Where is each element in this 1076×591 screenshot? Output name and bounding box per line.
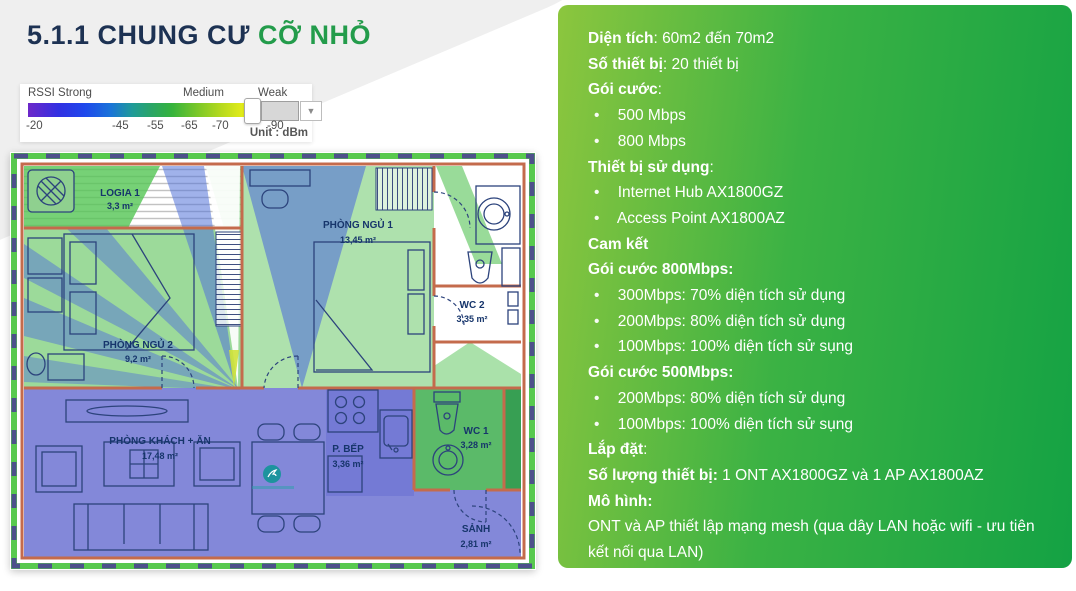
closet-strip-bedroom1 bbox=[376, 168, 432, 210]
floorplan-image: LOGIA 1 3,3 m² PHÒNG NGỦ 2 9,2 m² PHÒNG … bbox=[10, 152, 536, 570]
info-panel-line: Cam kết bbox=[588, 232, 1054, 258]
info-panel-line: Mô hình: bbox=[588, 489, 1054, 515]
rssi-legend: RSSI Strong Medium Weak ▼ -20 -45 -55 -6… bbox=[20, 84, 312, 142]
info-panel-line: Gói cước 500Mbps: bbox=[588, 360, 1054, 386]
rssi-gradient-bar bbox=[28, 103, 246, 117]
legend-tick: -70 bbox=[212, 120, 229, 132]
info-panel-line: Gói cước 800Mbps: bbox=[588, 257, 1054, 283]
room-area-wc2: 3,35 m² bbox=[456, 314, 487, 324]
info-panel-line: 200Mbps: 80% diện tích sử dụng bbox=[588, 386, 1054, 412]
info-panel-line: Gói cước: bbox=[588, 77, 1054, 103]
room-label-wc1: WC 1 bbox=[464, 426, 489, 437]
room-label-bedroom1: PHÒNG NGỦ 1 bbox=[323, 218, 393, 231]
info-panel-line: 100Mbps: 100% diện tích sử sụng bbox=[588, 412, 1054, 438]
info-panel-line: 500 Mbps bbox=[588, 103, 1054, 129]
rssi-slider-handle[interactable] bbox=[244, 98, 261, 124]
heatmap-blue-kitchen bbox=[326, 388, 414, 496]
room-label-hall: SẢNH bbox=[462, 522, 490, 535]
legend-tick: -45 bbox=[112, 120, 129, 132]
info-panel-line: Số thiết bị: 20 thiết bị bbox=[588, 52, 1054, 78]
legend-tick: -65 bbox=[181, 120, 198, 132]
room-label-logia1: LOGIA 1 bbox=[100, 188, 140, 199]
rssi-dropdown-caret-icon[interactable]: ▼ bbox=[300, 101, 322, 121]
closet-strip-left bbox=[216, 232, 242, 326]
info-panel: Diện tích: 60m2 đến 70m2 Số thiết bị: 20… bbox=[558, 5, 1072, 568]
info-panel-line: 200Mbps: 80% diện tích sử dụng bbox=[588, 309, 1054, 335]
info-panel-line: 300Mbps: 70% diện tích sử dụng bbox=[588, 283, 1054, 309]
room-area-living: 17,48 m² bbox=[142, 451, 178, 461]
room-area-logia1: 3,3 m² bbox=[107, 201, 133, 211]
legend-label-medium: Medium bbox=[183, 87, 224, 99]
room-area-bedroom2: 9,2 m² bbox=[125, 354, 151, 364]
room-label-living: PHÒNG KHÁCH + ĂN bbox=[109, 434, 210, 447]
info-panel-line: Số lượng thiết bị: 1 ONT AX1800GZ và 1 A… bbox=[588, 463, 1054, 489]
info-panel-line: 800 Mbps bbox=[588, 129, 1054, 155]
legend-tick: -20 bbox=[26, 120, 43, 132]
info-panel-line: 100Mbps: 100% diện tích sử sụng bbox=[588, 334, 1054, 360]
room-area-wc1: 3,28 m² bbox=[460, 440, 491, 450]
rssi-weak-box bbox=[261, 101, 299, 121]
info-panel-line: Lắp đặt: bbox=[588, 437, 1054, 463]
info-panel-line: ONT và AP thiết lập mạng mesh (qua dây L… bbox=[588, 514, 1054, 565]
info-panel-line: Access Point AX1800AZ bbox=[588, 206, 1054, 232]
legend-tick: -55 bbox=[147, 120, 164, 132]
room-label-kitchen: P. BẾP bbox=[332, 442, 364, 455]
room-area-bedroom1: 13,45 m² bbox=[340, 235, 376, 245]
info-panel-line: Diện tích: 60m2 đến 70m2 bbox=[588, 26, 1054, 52]
legend-label-weak: Weak bbox=[258, 87, 287, 99]
floorplan-svg: LOGIA 1 3,3 m² PHÒNG NGỦ 2 9,2 m² PHÒNG … bbox=[10, 152, 536, 570]
page-title-highlight: CỠ NHỎ bbox=[258, 20, 371, 50]
heatmap-green-wc1 bbox=[414, 388, 504, 490]
room-area-hall: 2,81 m² bbox=[460, 539, 491, 549]
room-label-wc2: WC 2 bbox=[460, 300, 485, 311]
info-panel-line: Internet Hub AX1800GZ bbox=[588, 180, 1054, 206]
slide: { "title": { "prefix": "5.1.1 CHUNG CƯ "… bbox=[0, 0, 1076, 572]
info-panel-line: Thiết bị sử dụng: bbox=[588, 155, 1054, 181]
room-label-bedroom2: PHÒNG NGỦ 2 bbox=[103, 338, 173, 351]
info-panel-line: Không setup mô hình mesh 3 cấp bbox=[588, 566, 1054, 591]
legend-unit-label: Unit : dBm bbox=[250, 127, 308, 139]
heatmap-darkgreen-band bbox=[504, 388, 521, 490]
room-area-kitchen: 3,36 m² bbox=[332, 459, 363, 469]
page-title-prefix: 5.1.1 CHUNG CƯ bbox=[27, 20, 258, 50]
legend-label-strong: RSSI Strong bbox=[28, 87, 92, 99]
page-title: 5.1.1 CHUNG CƯ CỠ NHỎ bbox=[27, 20, 371, 51]
